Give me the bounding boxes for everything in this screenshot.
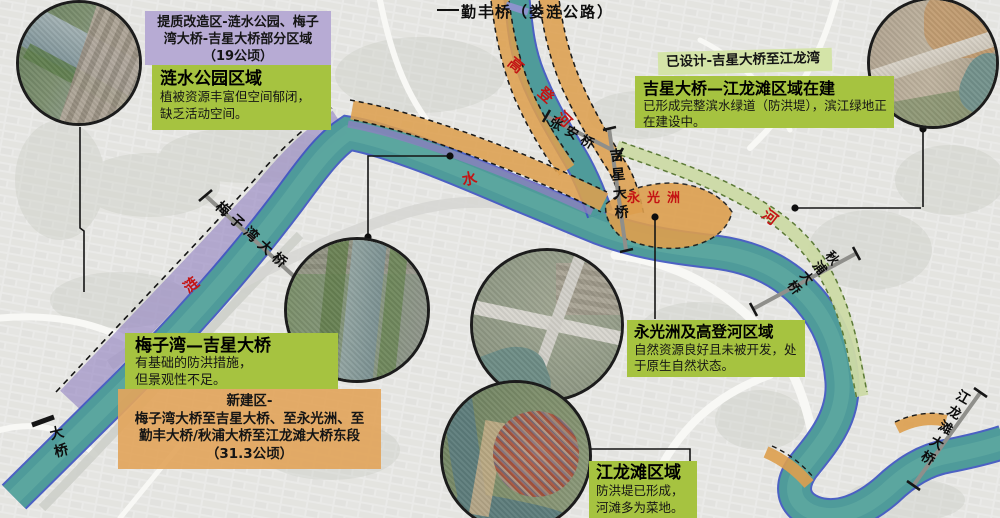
callout-body-line: 植被资源丰富但空间郁闭， — [160, 89, 323, 105]
callout-title: 永光洲及高登河区域 — [634, 323, 798, 342]
callout-lianshui-park: 涟水公园区域 植被资源丰富但空间郁闭， 缺乏活动空间。 — [152, 65, 331, 130]
callout-title: 涟水公园区域 — [160, 69, 323, 89]
callout-body-line: 已形成完整滨水绿道（防洪堤），滨江绿地正 — [643, 98, 886, 114]
callout-jianglongtan: 江龙滩区域 防洪堤已形成， 河滩多为菜地。 — [589, 461, 697, 518]
photo-noise — [443, 383, 589, 518]
callout-body-line: 自然资源良好且未被开发，处 — [634, 342, 798, 358]
callout-line: 提质改造区-涟水公园、梅子 — [151, 15, 325, 32]
callout-jixing-jianglongtan: 吉星大桥—江龙滩区域在建 已形成完整滨水绿道（防洪堤），滨江绿地正 在建设中。 — [635, 76, 894, 128]
photo-jixing-junction — [470, 248, 624, 402]
callout-yongguang-gaodeng: 永光洲及高登河区域 自然资源良好且未被开发，处 于原生自然状态。 — [627, 320, 805, 377]
river-char-shui: 水 — [461, 171, 478, 188]
callout-line: 梅子湾大桥至吉星大桥、至永光洲、至 — [122, 411, 377, 429]
callout-title: 江龙滩区域 — [596, 463, 690, 483]
callout-line: 新建区- — [122, 393, 377, 411]
callout-body-line: 缺乏活动空间。 — [160, 106, 323, 122]
callout-body-line: 有基础的防洪措施， — [135, 356, 328, 373]
callout-line: （31.3公顷） — [122, 446, 377, 464]
planning-map: 提质改造区-涟水公园、梅子 湾大桥-吉星大桥部分区域 （19公顷） 涟水公园区域… — [0, 0, 1000, 518]
photo-jianglongtan-village — [440, 380, 592, 518]
callout-title: 吉星大桥—江龙滩区域在建 — [643, 79, 886, 98]
callout-line: 勤丰大桥/秋浦大桥至江龙滩大桥东段 — [122, 428, 377, 446]
qinfeng-label-tick — [437, 9, 459, 11]
callout-title: 梅子湾—吉星大桥 — [135, 336, 328, 356]
callout-body-line: 河滩多为菜地。 — [596, 500, 690, 516]
callout-body-line: 防洪堤已形成， — [596, 483, 690, 499]
bridge-label-qinfeng: 勤丰桥（娄涟公路） — [461, 1, 614, 22]
callout-new-zone: 新建区- 梅子湾大桥至吉星大桥、至永光洲、至 勤丰大桥/秋浦大桥至江龙滩大桥东段… — [118, 389, 381, 469]
photo-lianshui-park — [16, 0, 142, 126]
photo-noise — [19, 3, 139, 123]
callout-designed-section: 已设计-吉星大桥至江龙湾 — [658, 48, 833, 76]
callout-line: 湾大桥-吉星大桥部分区域 — [151, 32, 325, 49]
callout-text: 已设计-吉星大桥至江龙湾 — [666, 50, 824, 72]
island-label-yongguangzhou: 永光洲 — [627, 192, 687, 205]
callout-body-line: 于原生自然状态。 — [634, 358, 798, 374]
callout-meiziwan-jixing: 梅子湾—吉星大桥 有基础的防洪措施， 但景观性不足。 — [125, 333, 338, 389]
photo-noise — [473, 251, 621, 399]
callout-body-line: 但景观性不足。 — [135, 373, 328, 390]
callout-body-line: 在建设中。 — [643, 114, 886, 130]
callout-line: （19公顷） — [151, 49, 325, 66]
callout-upgrade-zone: 提质改造区-涟水公园、梅子 湾大桥-吉星大桥部分区域 （19公顷） — [145, 11, 331, 65]
